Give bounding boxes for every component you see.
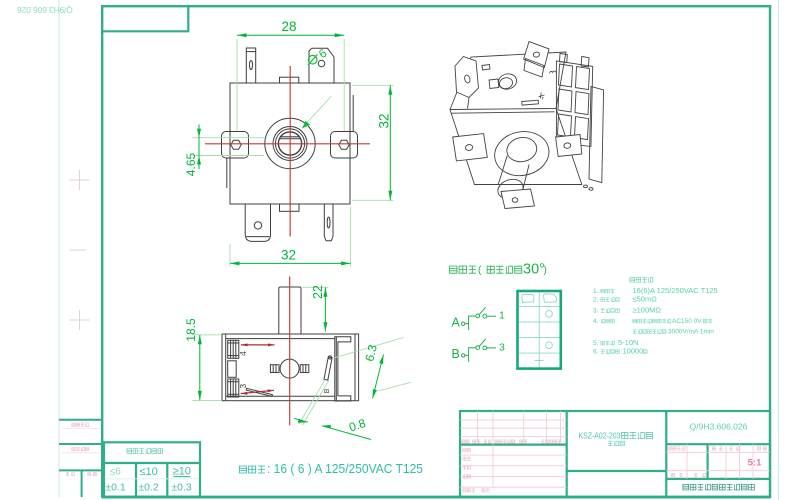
svg-text:Q/9H3.606.026: Q/9H3.606.026 — [690, 422, 748, 432]
svg-text:≥10: ≥10 — [173, 466, 191, 478]
svg-text:1: 1 — [499, 310, 505, 322]
svg-text:30°: 30° — [523, 262, 545, 278]
svg-text:A: A — [452, 316, 461, 330]
svg-text:≤6: ≤6 — [110, 467, 121, 478]
svg-text:3: 3 — [499, 341, 505, 353]
svg-text:3: 3 — [238, 384, 248, 389]
svg-text:22: 22 — [311, 285, 325, 299]
svg-text:32: 32 — [281, 248, 296, 263]
svg-text:B: B — [452, 347, 460, 361]
svg-text:3000V/mA 1min: 3000V/mA 1min — [668, 328, 714, 335]
svg-text:4.65: 4.65 — [184, 152, 198, 176]
svg-text:18.5: 18.5 — [184, 318, 198, 342]
svg-text:32: 32 — [377, 113, 392, 128]
svg-text:3.: 3. — [593, 308, 599, 315]
svg-text:B: B — [324, 388, 331, 393]
svg-text:±0.1: ±0.1 — [105, 482, 126, 494]
svg-text:2.: 2. — [593, 296, 599, 303]
svg-text:): ) — [544, 265, 547, 276]
svg-text:±0.3: ±0.3 — [171, 482, 192, 494]
svg-text:≤50mΩ: ≤50mΩ — [633, 294, 658, 303]
svg-text:Q/9H3.606.026: Q/9H3.606.026 — [17, 5, 73, 14]
svg-text:AC150 0V: AC150 0V — [672, 318, 702, 325]
svg-text:4: 4 — [238, 351, 248, 356]
svg-text:±0.2: ±0.2 — [138, 482, 159, 494]
svg-text:: 16 ( 6 ) A 125/250VAC T125: : 16 ( 6 ) A 125/250VAC T125 — [267, 462, 423, 476]
svg-text:10000: 10000 — [623, 346, 644, 355]
svg-text:≥100MΩ: ≥100MΩ — [633, 306, 662, 315]
svg-text:5.: 5. — [593, 340, 599, 347]
svg-text:KSZ-A02-203: KSZ-A02-203 — [579, 432, 621, 441]
svg-text:28: 28 — [281, 19, 296, 34]
svg-text:1.: 1. — [593, 288, 599, 295]
svg-text:4.: 4. — [593, 318, 599, 325]
svg-text:6.: 6. — [593, 348, 599, 355]
svg-text:≤10: ≤10 — [139, 466, 157, 478]
svg-text:5:1: 5:1 — [748, 458, 762, 469]
